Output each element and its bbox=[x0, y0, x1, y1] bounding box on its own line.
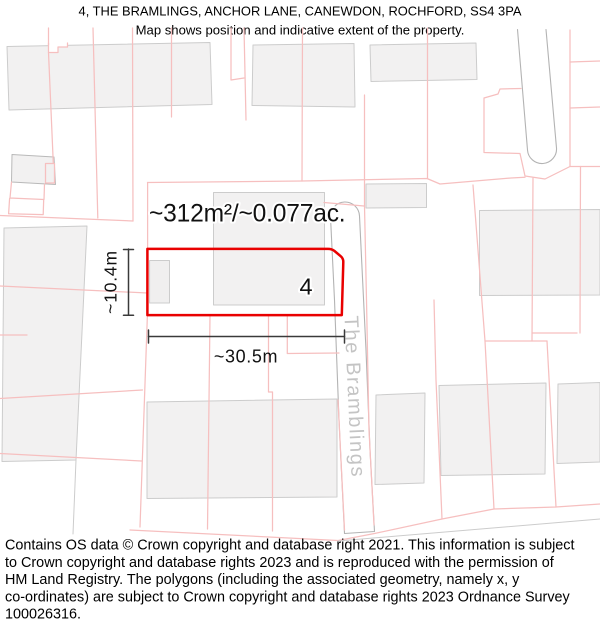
svg-text:~10.4m: ~10.4m bbox=[100, 250, 120, 314]
svg-text:4, THE BRAMLINGS, ANCHOR LANE,: 4, THE BRAMLINGS, ANCHOR LANE, CANEWDON,… bbox=[79, 4, 522, 19]
svg-text:4: 4 bbox=[299, 274, 312, 300]
svg-text:~30.5m: ~30.5m bbox=[214, 347, 278, 367]
svg-text:100026316.: 100026316. bbox=[5, 607, 81, 623]
svg-text:co-ordinates) are subject to C: co-ordinates) are subject to Crown copyr… bbox=[5, 589, 571, 605]
svg-text:Map shows position and indicat: Map shows position and indicative extent… bbox=[136, 23, 465, 38]
svg-text:to Crown copyright and databas: to Crown copyright and database rights 2… bbox=[5, 555, 555, 571]
svg-text:Contains OS data © Crown copyr: Contains OS data © Crown copyright and d… bbox=[5, 538, 574, 554]
svg-text:~312m²/~0.077ac.: ~312m²/~0.077ac. bbox=[149, 201, 345, 228]
svg-text:HM Land Registry. The polygons: HM Land Registry. The polygons (includin… bbox=[5, 572, 520, 588]
